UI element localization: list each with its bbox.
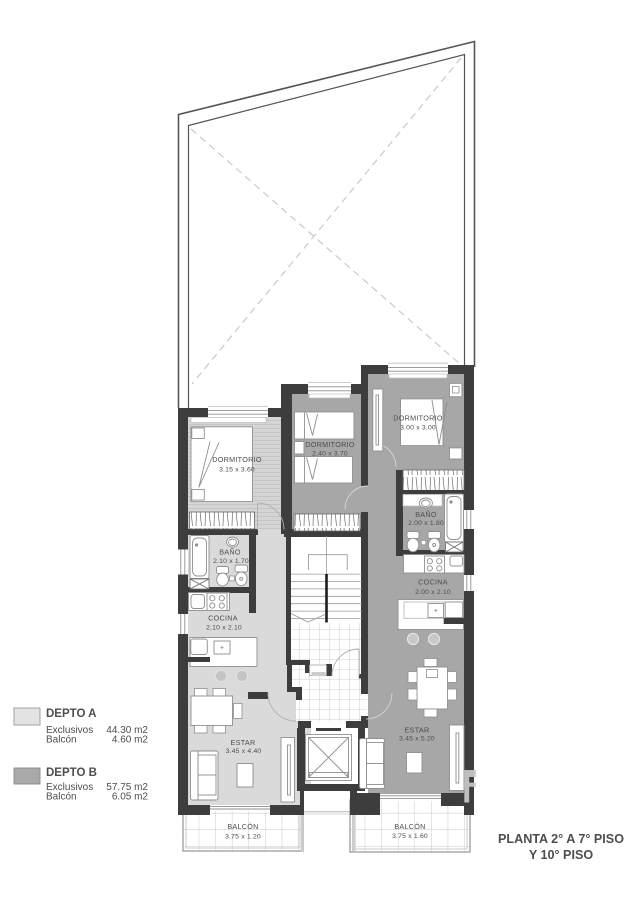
svg-text:BALCÓN: BALCÓN [227,822,258,831]
svg-text:2.10 x 1.70: 2.10 x 1.70 [213,558,249,565]
svg-text:3.75 x 1.60: 3.75 x 1.60 [392,833,428,840]
svg-text:2.10 x 2.10: 2.10 x 2.10 [206,625,242,632]
svg-text:3.15 x 3.60: 3.15 x 3.60 [219,467,255,474]
svg-text:Balcón: Balcón [46,735,77,746]
svg-text:Balcón: Balcón [46,792,77,803]
svg-text:2.40 x 3.70: 2.40 x 3.70 [312,451,348,458]
svg-text:COCINA: COCINA [418,578,448,587]
svg-text:BALCÓN: BALCÓN [394,822,425,831]
svg-text:DEPTO A: DEPTO A [46,708,96,720]
svg-text:4.60 m2: 4.60 m2 [112,735,149,746]
svg-text:ESTAR: ESTAR [405,726,430,735]
svg-text:DORMITORIO: DORMITORIO [393,414,443,423]
svg-text:BAÑO: BAÑO [415,510,437,519]
svg-text:3.45 x 5.20: 3.45 x 5.20 [399,736,435,743]
svg-text:2.00 x 1.80: 2.00 x 1.80 [408,520,444,527]
svg-text:DEPTO B: DEPTO B [46,767,97,779]
svg-text:Y 10° PISO: Y 10° PISO [529,848,594,862]
svg-text:ESTAR: ESTAR [231,738,256,747]
svg-text:DORMITORIO: DORMITORIO [305,440,355,449]
svg-text:DORMITORIO: DORMITORIO [212,455,262,464]
svg-text:BAÑO: BAÑO [219,548,241,557]
svg-text:3.00 x 3.00: 3.00 x 3.00 [400,425,436,432]
svg-text:6.05 m2: 6.05 m2 [112,792,149,803]
svg-text:COCINA: COCINA [208,614,238,623]
svg-text:2.00 x 2.10: 2.00 x 2.10 [415,589,451,596]
svg-text:PLANTA 2° A 7° PISO: PLANTA 2° A 7° PISO [498,832,624,846]
svg-text:3.75 x 1.20: 3.75 x 1.20 [225,834,261,841]
svg-text:3.45 x 4.40: 3.45 x 4.40 [226,748,262,755]
